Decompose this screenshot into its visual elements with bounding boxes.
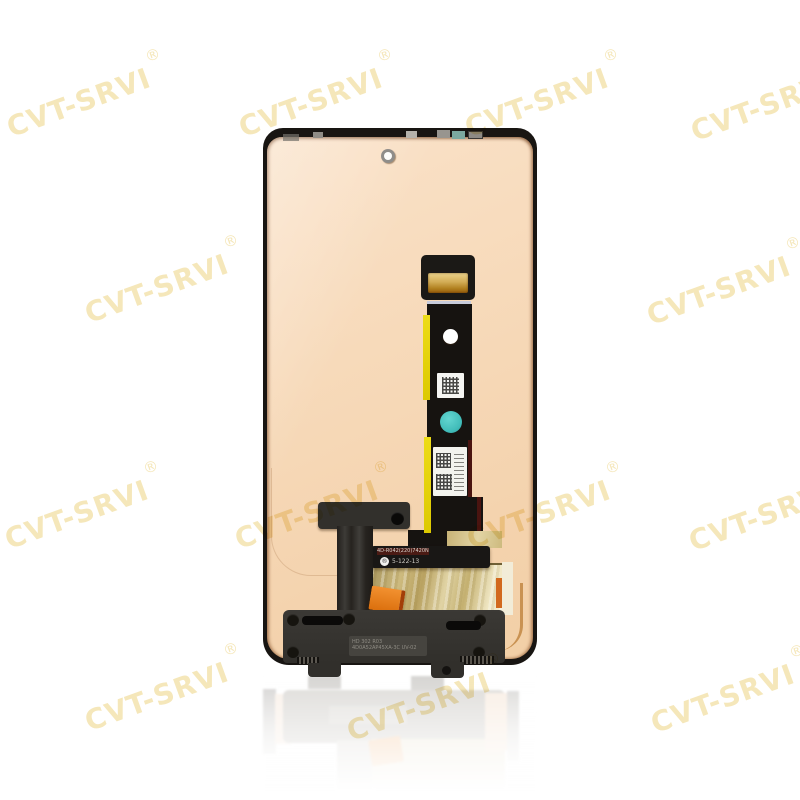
registered-mark-sticker: ® <box>380 557 389 566</box>
bracket-marking-plate: HD 302 R03 4D0A52AP45XA-3C UV-02 <box>349 636 427 656</box>
bezel-segment <box>437 130 450 138</box>
teal-round-sticker <box>440 411 462 433</box>
watermark: CVT-SRVI® <box>646 651 800 740</box>
bracket-teeth <box>460 656 494 664</box>
bracket-marking-line2: 4D0A52AP45XA-3C UV-02 <box>352 645 417 651</box>
flex-bar-marking: 4D-R042(220)7420N-02 <box>377 548 429 555</box>
bracket-foot <box>308 663 341 677</box>
screw-hole <box>442 666 451 675</box>
bezel-segment <box>313 132 323 138</box>
watermark: CVT-SRVI® <box>0 467 171 556</box>
flex-bar-marking: 5-122-13 <box>392 557 419 566</box>
screw-hole <box>391 512 404 525</box>
qr-label-large <box>433 447 467 496</box>
watermark: CVT-SRVI® <box>684 469 800 558</box>
camera-hole <box>381 149 395 163</box>
lcd-assembly-rear-photo: 4D-R042(220)7420N-02 ® 5-122-13 HD 302 R… <box>263 128 537 665</box>
flex-bar: 4D-R042(220)7420N-02 ® 5-122-13 <box>371 546 490 568</box>
yellow-flex-edge <box>424 437 431 533</box>
qr-code <box>436 474 452 490</box>
bracket-trunk <box>337 526 373 614</box>
bracket-slot <box>302 616 343 625</box>
bottom-bracket: HD 302 R03 4D0A52AP45XA-3C UV-02 <box>283 610 505 663</box>
reflection-fade <box>263 676 537 800</box>
watermark: CVT-SRVI® <box>80 649 251 738</box>
bezel-segment <box>283 134 299 141</box>
bracket-slot <box>446 621 481 630</box>
screw-hole <box>343 613 355 625</box>
yellow-flex-edge <box>423 315 430 400</box>
foil-highlight-edge <box>502 562 513 615</box>
label-text-column <box>454 453 464 491</box>
watermark: CVT-SRVI® <box>2 55 173 144</box>
red-flex-stripe <box>468 440 472 497</box>
white-round-sticker <box>443 329 458 344</box>
watermark: CVT-SRVI® <box>686 59 800 148</box>
bezel-segment <box>468 131 483 139</box>
qr-label-small <box>437 373 464 398</box>
bracket-foot <box>431 662 464 678</box>
watermark: CVT-SRVI® <box>642 243 800 332</box>
gold-connector-pad <box>428 273 468 293</box>
watermark: CVT-SRVI® <box>80 241 251 330</box>
surface-reflection <box>263 676 537 800</box>
qr-code <box>442 377 459 394</box>
qr-code <box>436 453 451 468</box>
screw-hole <box>287 614 299 626</box>
product-photo-stage: 4D-R042(220)7420N-02 ® 5-122-13 HD 302 R… <box>0 0 800 800</box>
bezel-segment <box>406 131 417 138</box>
bracket-top-tab <box>318 502 410 529</box>
bezel-segment-teal <box>452 131 465 139</box>
